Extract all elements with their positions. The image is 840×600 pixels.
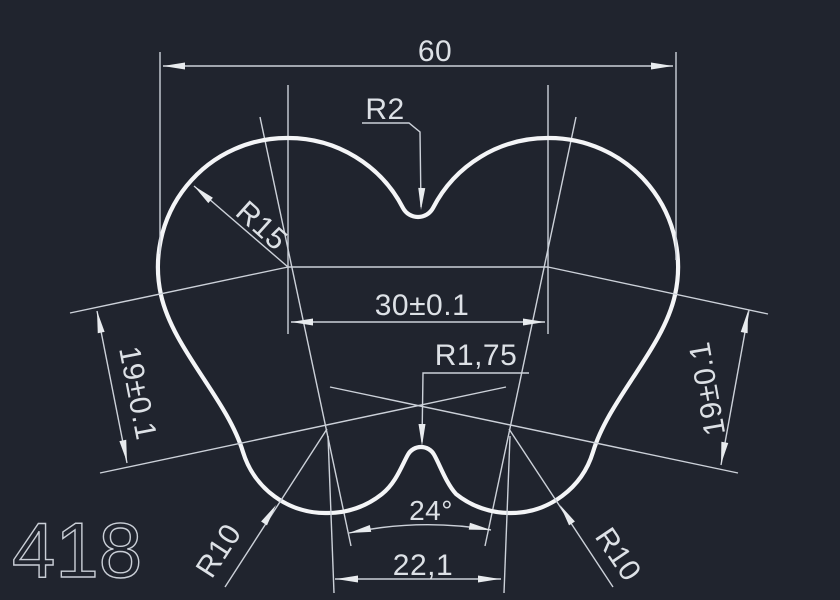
arrowhead [97,311,105,333]
leader-r10-left [225,429,327,587]
arrowhead [651,63,673,70]
dim-60-label: 60 [418,35,452,68]
dim-r10-right-label: R10 [588,522,647,587]
dim-r175-label: R1,75 [435,339,518,372]
arrowhead [469,523,491,530]
cad-viewport[interactable]: 60 R2 R15 30±0.1 R1,75 19±0.1 19±0.1 24°… [0,0,840,600]
arrowhead [349,525,371,533]
arrowhead [336,576,358,583]
construction-line-left [260,117,351,546]
dim-30-label: 30±0.1 [375,289,470,322]
arrowhead [478,576,500,583]
arrowhead [291,319,313,326]
dim-22-label: 22,1 [393,549,453,582]
arrowhead [523,319,545,326]
dim-19-right-ext-bottom [330,387,738,473]
arrowhead [560,505,575,525]
arrowhead [163,63,185,70]
sheet-number: 418 [12,506,142,594]
arrowhead [119,440,127,462]
dim-60 [160,52,676,260]
dim-19-right-ext-top [548,267,768,314]
arrowhead [741,311,748,333]
dim-r15-label: R15 [229,195,293,257]
construction-line-right [485,117,576,546]
leader-r175 [422,373,529,442]
leader-r2 [362,123,421,207]
leader-r10-right [509,429,613,587]
dim-19-right-label: 19±0.1 [683,339,732,438]
dim-r2-label: R2 [365,93,404,126]
dim-19-right-line [721,310,749,465]
dim-24-label: 24° [409,495,453,526]
dim-19-left-ext-top [70,267,288,313]
arrowhead [419,424,426,446]
dim-r10-left-label: R10 [190,518,248,583]
arrowhead [261,505,276,525]
arrowhead [194,186,213,203]
arrowhead [721,442,728,464]
arrowhead [418,188,425,210]
part-outline [158,138,678,513]
cad-canvas[interactable]: 60 R2 R15 30±0.1 R1,75 19±0.1 19±0.1 24°… [0,0,840,600]
